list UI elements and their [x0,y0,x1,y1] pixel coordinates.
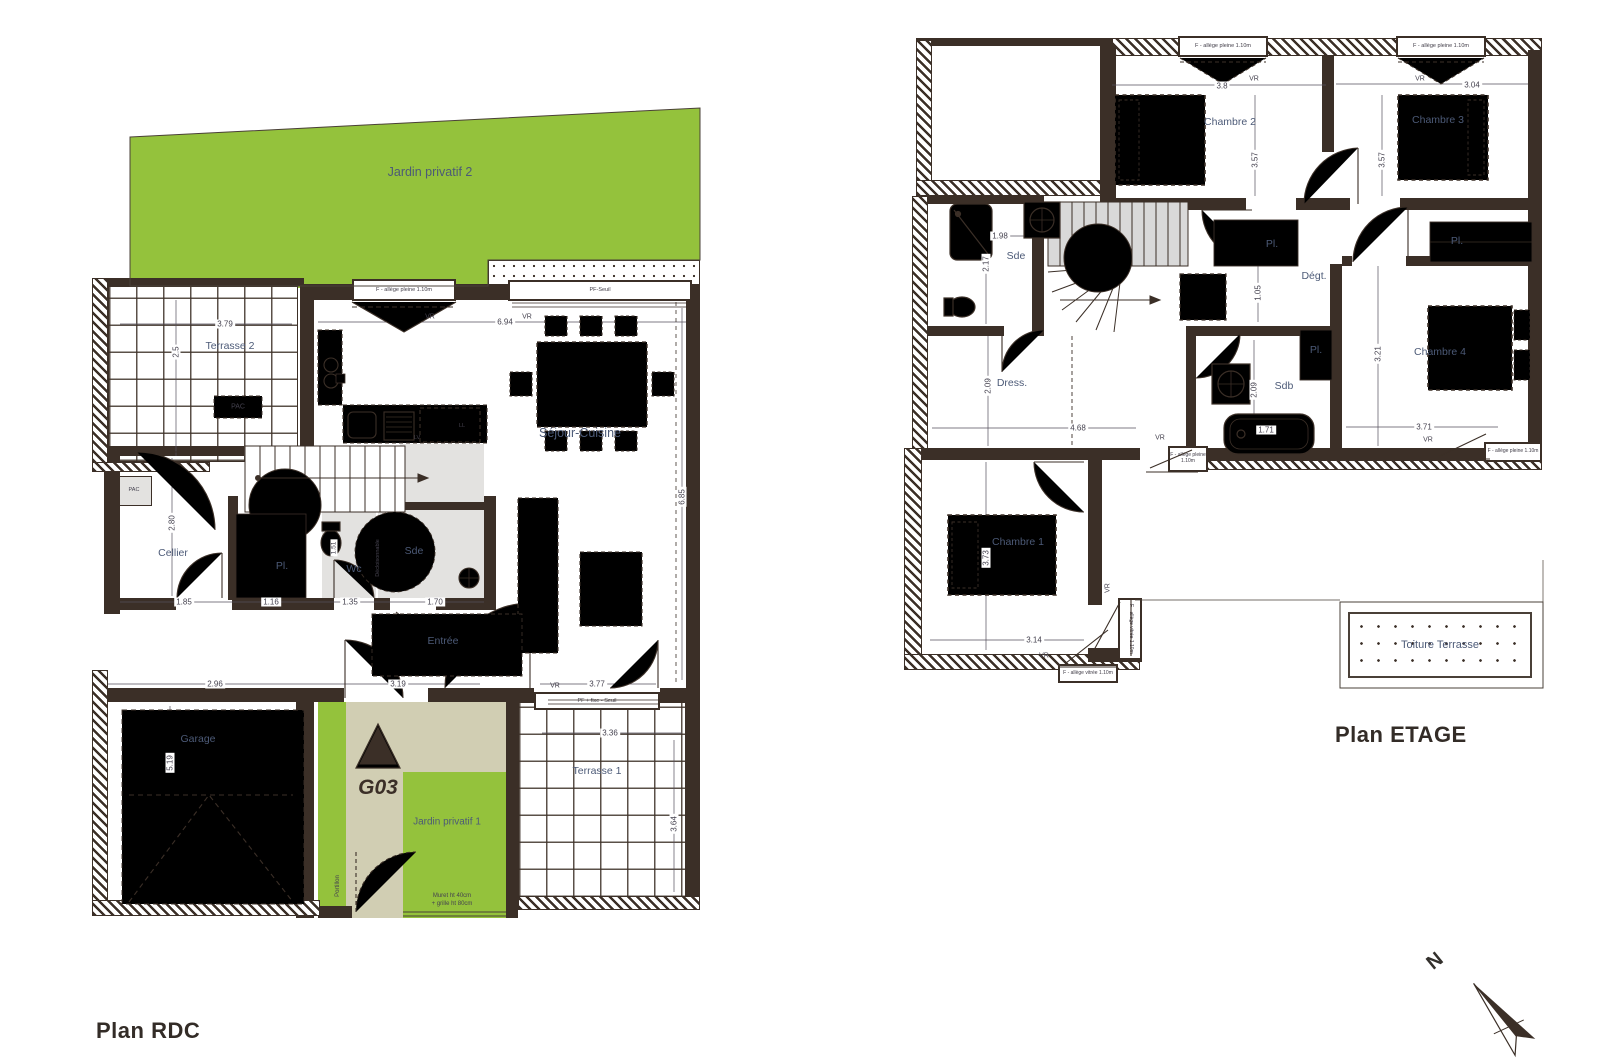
wall-segment [228,496,238,600]
vr-label: VR [1155,435,1165,442]
wall-segment [660,688,700,702]
room-label-wc: Wc [346,563,361,575]
dim-label: 2.5 [172,344,181,359]
room-label-toiture: Toiture Terrasse [1401,639,1479,651]
dim-label: 3.14 [1024,636,1044,645]
room-label-degt: Dégt. [1301,270,1326,282]
plan-etage-title: Plan ETAGE [1335,722,1467,748]
wall-segment [1342,256,1352,266]
vr-label: VR [550,683,560,690]
muret-note: Muret ht 40cm [433,893,471,899]
room-label-terrasse1: Terrasse 1 [572,765,621,777]
entry-path-top [346,702,506,772]
wall-segment [1296,198,1350,210]
wall-segment [104,446,244,456]
dim-label: 3.57 [1378,150,1387,170]
dim-label: 3.79 [215,320,235,329]
window-box: F - allège pleine 1.10m [1168,446,1208,472]
window-box: F - allège pleine 1.10m [1396,36,1486,57]
wall-segment [928,326,1004,336]
room-label-pl: Pl. [276,560,288,572]
window-label: F - allège pleine 1.10m [1170,453,1206,465]
vr-label: VR [1423,437,1433,444]
dim-label: 2.09 [1250,380,1259,400]
window-box: F - allège pleine 1.10m [1178,36,1268,57]
garden-strip [318,702,346,918]
room-label-sejour: Séjour-Cuisine [539,426,621,440]
pac-label: PAC [231,404,245,411]
wall-segment [296,702,314,918]
dim-label: 3.77 [587,680,607,689]
window-label: F - allège pleine 1.10m [1488,449,1539,455]
wall-segment [912,448,1140,460]
dim-label: 3.21 [1374,344,1383,364]
wall-segment [1186,326,1196,460]
north-arrow [1461,973,1537,1057]
dim-label: 1.16 [261,598,281,607]
window-label: F - allège pleine 1.10m [1413,43,1469,49]
wall-segment [300,284,314,462]
wall-segment [1100,46,1116,198]
dim-label: 3.71 [1414,423,1434,432]
lv-label: LV [414,435,420,441]
dim-label: 3.19 [388,680,408,689]
wall-segment [232,598,334,610]
dim-label: 3.36 [600,729,620,738]
wall-segment [916,196,1044,204]
dim-label: 1.98 [990,232,1010,241]
wall-segment [1322,56,1334,152]
wall-segment [318,906,352,918]
hatched-wall [92,670,108,916]
wall-segment [686,702,700,906]
vr-label: VR [1039,653,1049,660]
window-label: F - allège vitrée 1.10m [1063,671,1113,677]
wall-segment [506,702,518,918]
room-label-dress: Dress. [997,377,1027,389]
ll-label: LL [459,423,465,429]
vr-label: VR [1105,583,1112,593]
wall-segment [1186,326,1336,336]
room-label-jardin1: Jardin privatif 1 [413,817,481,828]
dim-label: 5.19 [166,753,175,773]
window-label: F - allège pleine 1.10m [1195,43,1251,49]
dim-label: 4.68 [1068,424,1088,433]
dim-label: 2.09 [984,376,993,396]
dim-label: 3.64 [670,814,679,834]
room-label-chambre3: Chambre 3 [1412,114,1464,126]
room-label-sdb: Sdb [1275,380,1294,392]
wall-segment [1400,198,1542,210]
room-label-cellier: Cellier [158,547,188,559]
dim-label: 2.80 [168,513,177,533]
hatched-wall [916,180,1116,196]
wall-segment [484,496,496,610]
hatched-wall [916,40,932,190]
room-label-sde: Sde [405,545,424,557]
dim-label: 1.35 [340,598,360,607]
wall-segment [318,502,484,510]
garden-2-area [130,108,700,260]
wall-segment [916,38,1116,46]
window-label: F - allège pleine 1.10m [376,287,432,293]
dim-label: 6.85 [678,487,687,507]
dim-label: 1.71 [1256,426,1276,435]
window-label: PF-Seuil [589,287,610,293]
room-label-pl-c34: Pl. [1451,235,1463,247]
window-label: F - allège vitrée 1.10m [1127,604,1133,654]
wall-segment [1088,460,1102,605]
wall-segment [686,284,700,688]
hatched-wall [92,900,320,916]
dim-label: 2.17 [982,254,991,274]
wall-segment [1032,198,1044,336]
window-box: PF + fixe - Seuil [534,692,660,710]
pac-label: PAC [129,487,140,493]
window-box: PF-Seuil [508,280,692,301]
wall-segment [108,278,304,286]
window-box: F - allège pleine 1.10m [1484,442,1542,462]
dim-label: 1.85 [174,598,194,607]
north-label: N [1422,948,1448,975]
dim-label: 3.8 [1214,82,1229,91]
dim-label: 3.57 [1251,150,1260,170]
stair-landing [400,444,484,504]
dim-label: 2.96 [205,680,225,689]
unit-marker-label: G03 [358,776,398,800]
dim-label: 1.05 [1254,283,1263,303]
room-label-pl-stair: Pl. [1266,238,1278,250]
bedroom-furniture [948,95,1530,595]
room-label-chambre2: Chambre 2 [1204,116,1256,128]
dim-label: 1.70 [425,598,445,607]
wall-segment [1330,264,1342,460]
wall-segment [1528,50,1542,460]
wall-segment [104,598,176,610]
wall-segment [1406,256,1542,266]
wall-segment [1100,198,1246,210]
terrace-2-tiles [108,286,298,462]
hatched-wall [518,896,700,910]
hatched-wall [904,448,922,670]
hatched-wall [92,462,210,472]
room-label-jardin2: Jardin privatif 2 [388,165,473,179]
room-label-entree: Entrée [428,635,459,647]
room-label-terrasse2: Terrasse 2 [205,340,254,352]
vr-label: VR [1415,76,1425,83]
room-label-sde-etage: Sde [1007,250,1026,262]
sink-alcove-floor [452,510,484,598]
window-box: F - allège vitrée 1.10m [1118,598,1142,660]
vr-label: VR [425,314,435,321]
vr-label: VR [522,314,532,321]
room-label-chambre1: Chambre 1 [992,536,1044,548]
window-box: F - allège pleine 1.10m [352,279,456,301]
muret-note: + grille ht 80cm [432,901,473,907]
plan-rdc-title: Plan RDC [96,1018,200,1044]
dim-label: 6.94 [495,318,515,327]
window-box: F - allège vitrée 1.10m [1058,664,1118,683]
portillon-label: Portillon [335,875,341,897]
wall-segment [374,598,390,610]
wall-segment [104,688,344,702]
floorplan-sheet: F - allège pleine 1.10m PF-Seuil PF + fi… [0,0,1600,1060]
wall-segment [428,688,534,702]
window-label: PF + fixe - Seuil [578,698,617,704]
room-label-chambre4: Chambre 4 [1414,346,1466,358]
room-label-pl-sdb: Pl. [1310,344,1322,356]
decloisonnable-label: Décloisonnable [375,539,381,577]
dim-label: 3.73 [982,548,991,568]
dim-label: 1.51 [331,540,338,557]
vr-label: VR [1249,76,1259,83]
dim-label: 3.04 [1462,81,1482,90]
hatched-wall [912,196,928,450]
room-label-garage: Garage [180,733,215,745]
hatched-wall [92,278,108,472]
